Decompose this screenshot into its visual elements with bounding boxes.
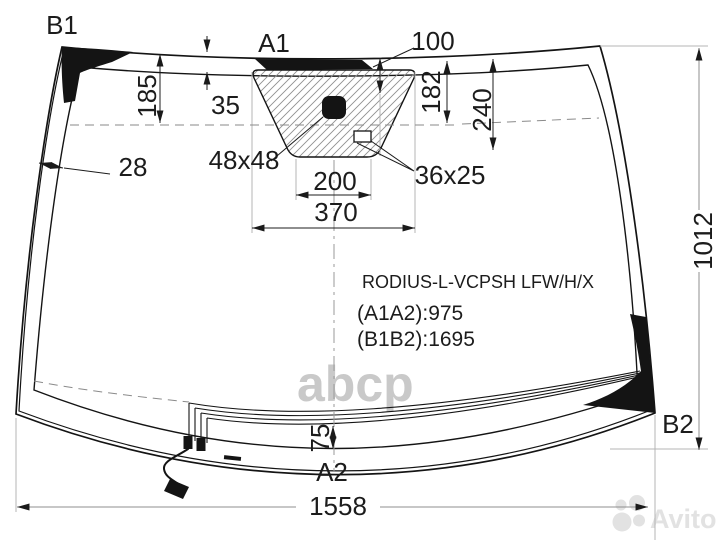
dim-1558: 1558 xyxy=(309,491,367,521)
corner-marker-b1: B1 xyxy=(46,10,78,40)
dim-1012: 1012 xyxy=(688,212,718,270)
dim-240: 240 xyxy=(467,88,497,131)
abcp-watermark: abcp xyxy=(297,356,414,412)
dim-200: 200 xyxy=(313,166,356,196)
heater-terminal xyxy=(184,436,193,449)
avito-logo-icon xyxy=(613,495,646,532)
windshield-diagram-page: abcp Avito xyxy=(0,0,720,540)
dim-35: 35 xyxy=(211,90,240,120)
heater-terminal xyxy=(197,438,206,451)
avito-watermark: Avito xyxy=(613,495,717,534)
dim-100: 100 xyxy=(411,26,454,56)
corner-patch-b2 xyxy=(583,314,655,413)
dim-75: 75 xyxy=(305,424,335,453)
sensor-window xyxy=(354,131,371,142)
windshield-diagram: abcp Avito xyxy=(0,0,720,540)
corner-marker-a2: A2 xyxy=(316,457,348,487)
sensor-zone-group xyxy=(253,70,415,157)
edge-mark xyxy=(224,455,241,461)
diagonal-b1b2: (B1B2):1695 xyxy=(357,328,475,351)
dim-370: 370 xyxy=(314,197,357,227)
dim-182: 182 xyxy=(416,70,446,113)
corner-marker-b2: B2 xyxy=(662,409,694,439)
avito-watermark-text: Avito xyxy=(650,504,717,534)
part-code: RODIUS-L-VCPSH LFW/H/X xyxy=(362,272,594,292)
corner-patch-b1 xyxy=(62,47,133,103)
abcp-watermark-text: abcp xyxy=(297,356,414,412)
heater-line xyxy=(207,377,638,424)
corner-marker-a1: A1 xyxy=(258,28,290,58)
top-ceramic-strip xyxy=(255,59,373,70)
dim-185: 185 xyxy=(132,74,162,117)
mirror-mount xyxy=(322,96,346,119)
diagonal-a1a2: (A1A2):975 xyxy=(357,302,463,325)
heater-connector xyxy=(164,479,189,499)
heater-line xyxy=(195,373,640,416)
dim-48x48: 48x48 xyxy=(209,145,280,175)
dim-28: 28 xyxy=(119,152,148,182)
dim-36x25: 36x25 xyxy=(415,160,486,190)
